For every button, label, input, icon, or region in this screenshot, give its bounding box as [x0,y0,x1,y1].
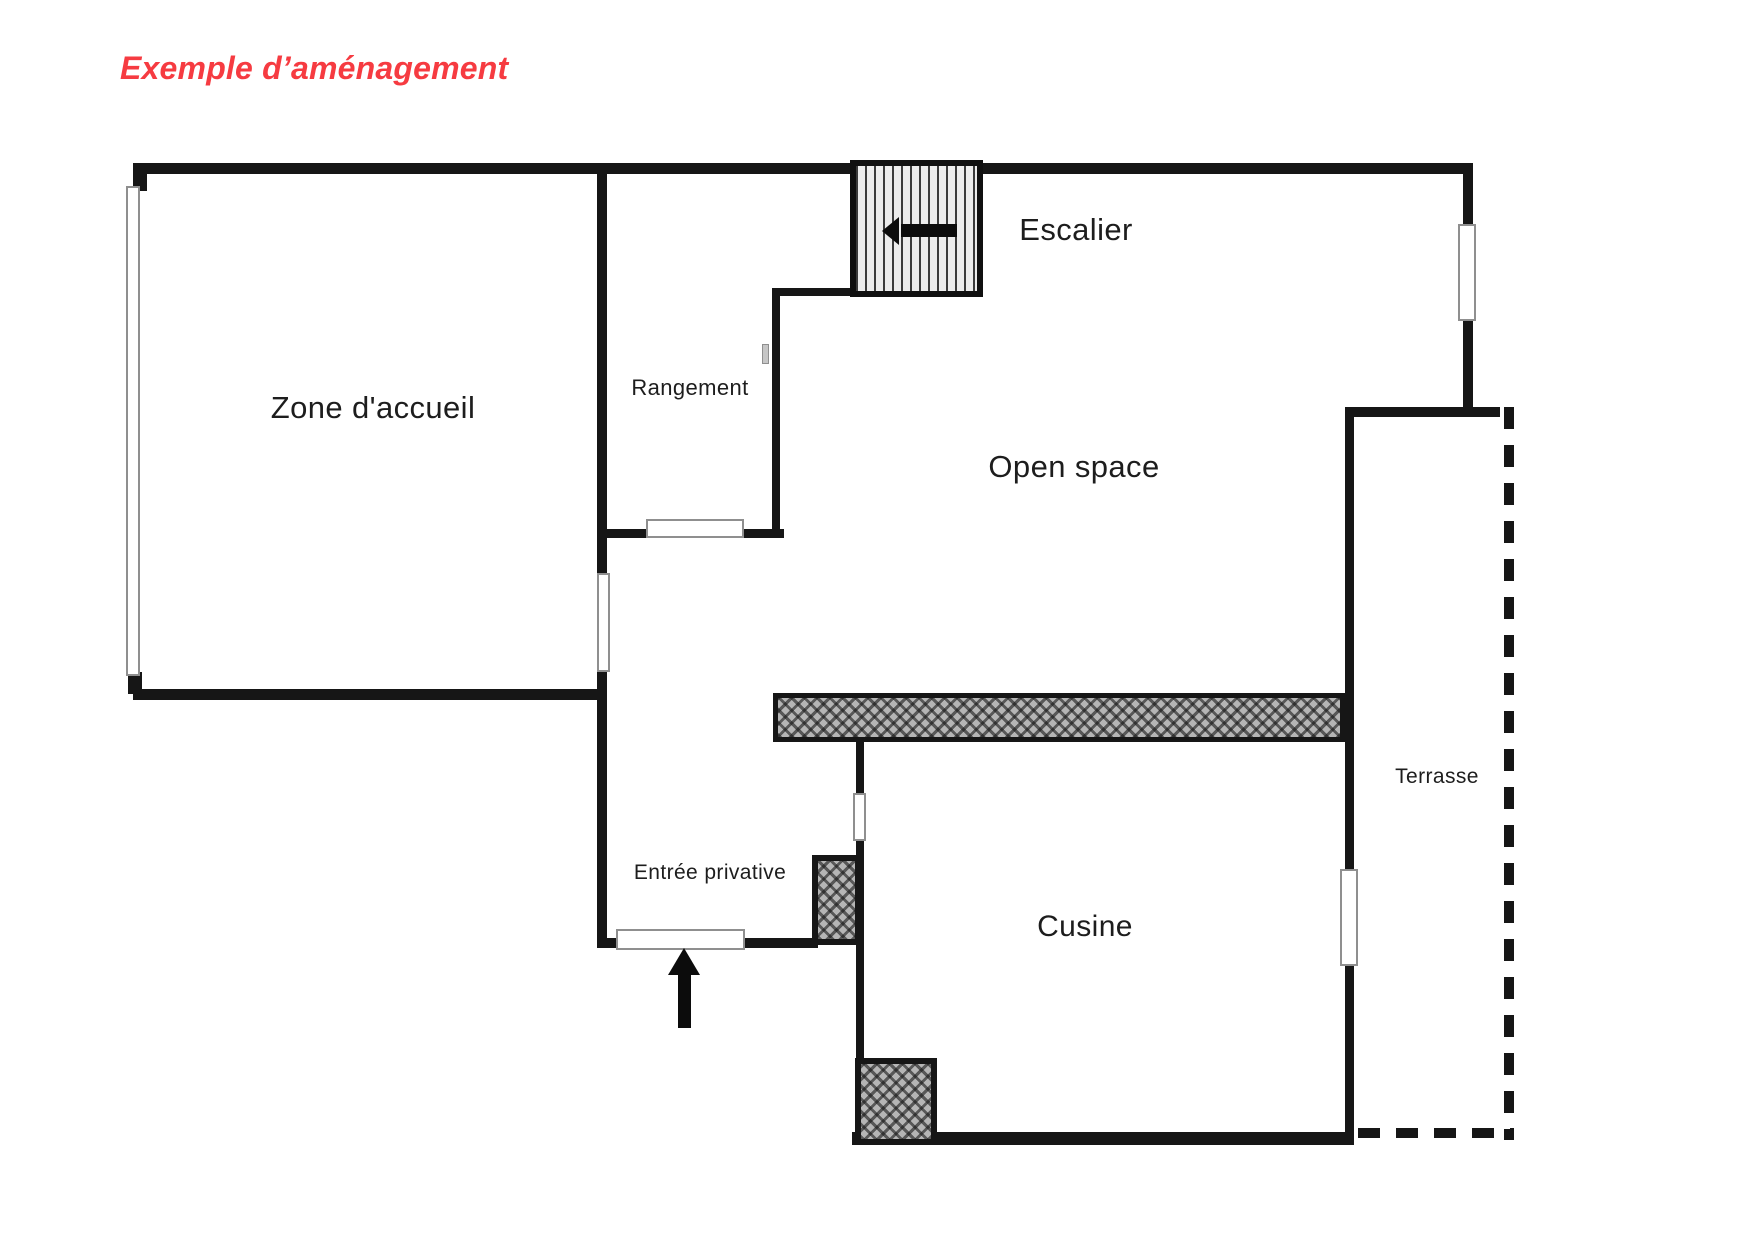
wall-terrasse-left [1345,407,1354,1145]
terrasse-dashed-boundary-bottom [1358,1128,1514,1138]
room-label-cusine: Cusine [1037,910,1133,944]
door-cusine-left [853,793,866,841]
window-zone-accueil-left [126,186,140,676]
room-label-terrasse: Terrasse [1395,765,1479,789]
stairs-direction-arrow-icon [901,224,957,237]
room-label-zone-accueil: Zone d'accueil [271,390,476,426]
wall-corridor-left [597,163,607,948]
door-main-entrance [616,929,745,950]
entrance-arrow-icon [678,973,691,1028]
room-label-rangement: Rangement [631,375,748,401]
wall-rangement-right [772,288,780,538]
room-label-entree-privative: Entrée privative [634,861,786,885]
door-mark-rangement [762,344,769,364]
hatched-pillar-cusine [855,1058,937,1145]
door-rangement [646,519,744,538]
room-label-open-space: Open space [988,449,1159,485]
wall-zone-accueil-bottom [133,689,607,700]
hatched-pillar-entree [812,855,861,945]
entrance-arrow-head-icon [668,948,700,975]
wall-terrasse-top [1345,407,1480,417]
window-corridor-left-wall [597,573,610,672]
hatched-partition-open-space-cusine [773,693,1345,742]
floor-plan: Exemple d’aménagement Zone d'accueil Ran… [0,0,1748,1240]
page-title: Exemple d’aménagement [120,50,508,87]
terrasse-dashed-boundary-right [1504,407,1514,1140]
window-cusine-terrasse [1340,869,1358,966]
window-open-space-right [1458,224,1476,321]
stairs-arrow-head-icon [882,217,899,245]
wall-top [133,163,1473,174]
room-label-escalier: Escalier [1019,212,1132,248]
